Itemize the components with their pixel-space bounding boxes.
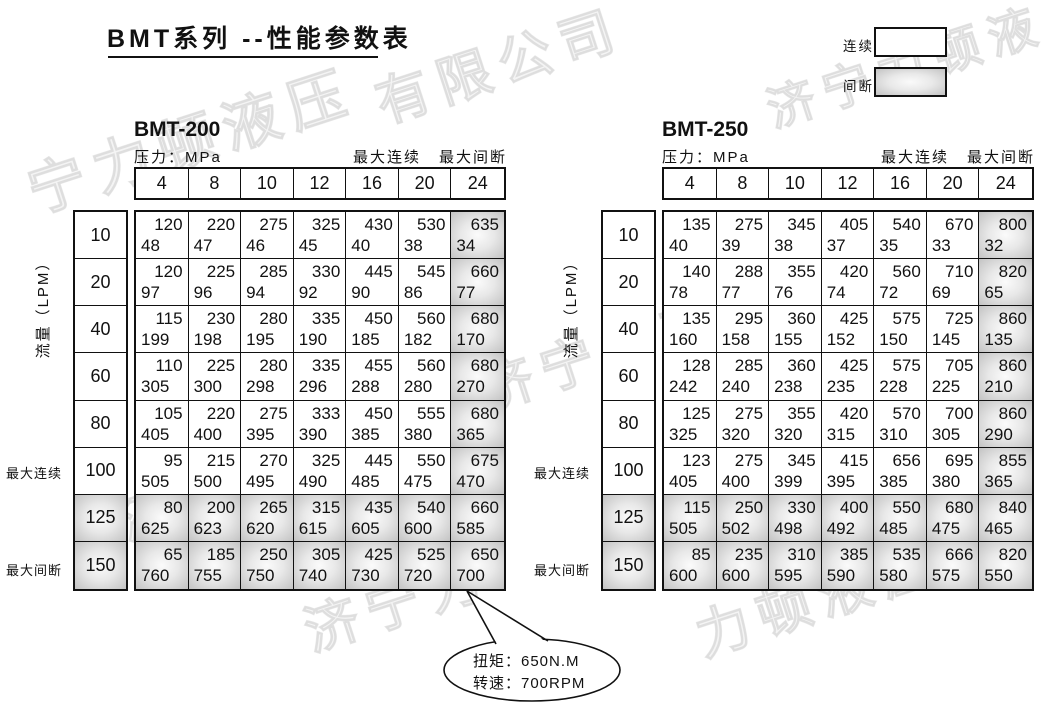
cell-torque-value: 360: [769, 308, 821, 329]
cell-speed-value: 740: [294, 565, 346, 586]
cell-speed-value: 465: [979, 518, 1032, 539]
cell-torque-value: 125: [664, 403, 716, 424]
cell-speed-value: 240: [717, 376, 769, 397]
cell-torque-value: 450: [346, 308, 398, 329]
data-cell: 335296: [294, 353, 347, 400]
cell-speed-value: 72: [874, 282, 926, 303]
flow-cell: 150: [603, 542, 654, 589]
cell-torque-value: 120: [136, 261, 188, 282]
data-cell: 695380: [927, 448, 980, 495]
data-cell: 420315: [822, 401, 875, 448]
cell-torque-value: 135: [664, 214, 716, 235]
data-cell: 40537: [822, 212, 875, 259]
cell-torque-value: 445: [346, 450, 398, 471]
cell-speed-value: 310: [874, 424, 926, 445]
cell-speed-value: 399: [769, 471, 821, 492]
cell-speed-value: 46: [241, 235, 293, 256]
pressure-header-cell: 20: [399, 169, 452, 198]
cell-torque-value: 660: [451, 497, 504, 518]
data-cell: 560182: [399, 306, 452, 353]
cell-torque-value: 545: [399, 261, 451, 282]
cell-torque-value: 275: [717, 214, 769, 235]
data-cell: 860290: [979, 401, 1032, 448]
data-cell: 27546: [241, 212, 294, 259]
cell-speed-value: 77: [717, 282, 769, 303]
flow-cell: 40: [75, 306, 126, 353]
cell-speed-value: 730: [346, 565, 398, 586]
data-cell: 333390: [294, 401, 347, 448]
data-cell: 42074: [822, 259, 875, 306]
cell-speed-value: 485: [874, 518, 926, 539]
header-max-labels: 最大连续 最大间断: [290, 146, 507, 167]
cell-torque-value: 710: [927, 261, 979, 282]
data-cell: 855365: [979, 448, 1032, 495]
cell-torque-value: 185: [189, 544, 241, 565]
cell-torque-value: 325: [294, 214, 346, 235]
cell-torque-value: 85: [664, 544, 716, 565]
cell-torque-value: 275: [717, 403, 769, 424]
cell-speed-value: 160: [664, 329, 716, 350]
data-cell: 270495: [241, 448, 294, 495]
flow-cell: 125: [75, 495, 126, 542]
data-cell: 14078: [664, 259, 717, 306]
cell-speed-value: 225: [927, 376, 979, 397]
data-cell: 450185: [346, 306, 399, 353]
pressure-header-cell: 10: [769, 169, 822, 198]
cell-speed-value: 155: [769, 329, 821, 350]
data-cell: 455288: [346, 353, 399, 400]
cell-torque-value: 315: [294, 497, 346, 518]
data-cell: 295158: [717, 306, 770, 353]
cell-torque-value: 860: [979, 355, 1032, 376]
data-cell: 560280: [399, 353, 452, 400]
cell-torque-value: 345: [769, 214, 821, 235]
cell-torque-value: 680: [451, 308, 504, 329]
cell-speed-value: 380: [927, 471, 979, 492]
cell-speed-value: 33: [927, 235, 979, 256]
cell-speed-value: 35: [874, 235, 926, 256]
data-cell: 305740: [294, 542, 347, 589]
cell-torque-value: 860: [979, 308, 1032, 329]
cell-torque-value: 660: [451, 261, 504, 282]
cell-torque-value: 650: [451, 544, 504, 565]
data-cell: 285240: [717, 353, 770, 400]
cell-speed-value: 77: [451, 282, 504, 303]
flow-cell: 100: [603, 448, 654, 495]
data-cell: 53038: [399, 212, 452, 259]
cell-speed-value: 502: [717, 518, 769, 539]
cell-speed-value: 620: [241, 518, 293, 539]
cell-speed-value: 365: [451, 424, 504, 445]
cell-speed-value: 290: [979, 424, 1032, 445]
data-cell: 230198: [189, 306, 242, 353]
cell-speed-value: 182: [399, 329, 451, 350]
cell-speed-value: 190: [294, 329, 346, 350]
data-cell: 550475: [399, 448, 452, 495]
data-cell: 43040: [346, 212, 399, 259]
cell-torque-value: 540: [874, 214, 926, 235]
data-cell: 95505: [136, 448, 189, 495]
cell-speed-value: 90: [346, 282, 398, 303]
cell-torque-value: 725: [927, 308, 979, 329]
data-cell: 280195: [241, 306, 294, 353]
cell-torque-value: 675: [451, 450, 504, 471]
cell-torque-value: 420: [822, 403, 874, 424]
cell-speed-value: 580: [874, 565, 926, 586]
cell-torque-value: 445: [346, 261, 398, 282]
data-cell: 275395: [241, 401, 294, 448]
cell-speed-value: 475: [927, 518, 979, 539]
pressure-header-cell: 24: [451, 169, 504, 198]
cell-torque-value: 80: [136, 497, 188, 518]
data-cell: 860210: [979, 353, 1032, 400]
cell-torque-value: 525: [399, 544, 451, 565]
cell-torque-value: 275: [241, 403, 293, 424]
cell-speed-value: 199: [136, 329, 188, 350]
cell-speed-value: 198: [189, 329, 241, 350]
cell-speed-value: 550: [979, 565, 1032, 586]
cell-speed-value: 400: [717, 471, 769, 492]
cell-speed-value: 390: [294, 424, 346, 445]
cell-speed-value: 86: [399, 282, 451, 303]
cell-torque-value: 635: [451, 214, 504, 235]
cell-speed-value: 40: [664, 235, 716, 256]
data-cell: 525720: [399, 542, 452, 589]
cell-torque-value: 680: [927, 497, 979, 518]
data-cell: 12048: [136, 212, 189, 259]
data-cell: 555380: [399, 401, 452, 448]
cell-torque-value: 656: [874, 450, 926, 471]
cell-torque-value: 400: [822, 497, 874, 518]
cell-speed-value: 320: [717, 424, 769, 445]
data-cell: 67033: [927, 212, 980, 259]
data-cell: 63534: [451, 212, 504, 259]
data-cell: 345399: [769, 448, 822, 495]
cell-torque-value: 200: [189, 497, 241, 518]
data-cell: 275320: [717, 401, 770, 448]
data-cell: 330498: [769, 495, 822, 542]
data-cell: 335190: [294, 306, 347, 353]
cell-speed-value: 170: [451, 329, 504, 350]
cell-speed-value: 150: [874, 329, 926, 350]
cell-torque-value: 115: [136, 308, 188, 329]
data-cell: 54035: [874, 212, 927, 259]
cell-speed-value: 700: [451, 565, 504, 586]
flow-cell: 20: [603, 259, 654, 306]
data-cell: 656385: [874, 448, 927, 495]
cell-torque-value: 95: [136, 450, 188, 471]
cell-speed-value: 32: [979, 235, 1032, 256]
data-cell: 215500: [189, 448, 242, 495]
max-continuous-row-label: 最大连续: [6, 463, 62, 482]
data-cell: 65760: [136, 542, 189, 589]
cell-torque-value: 140: [664, 261, 716, 282]
cell-speed-value: 365: [979, 471, 1032, 492]
cell-torque-value: 333: [294, 403, 346, 424]
data-cell: 700305: [927, 401, 980, 448]
cell-speed-value: 195: [241, 329, 293, 350]
cell-speed-value: 750: [241, 565, 293, 586]
cell-speed-value: 34: [451, 235, 504, 256]
cell-speed-value: 74: [822, 282, 874, 303]
data-cell: 550485: [874, 495, 927, 542]
cell-torque-value: 680: [451, 403, 504, 424]
data-cell: 660585: [451, 495, 504, 542]
cell-torque-value: 355: [769, 403, 821, 424]
data-cell: 705225: [927, 353, 980, 400]
data-cell: 435605: [346, 495, 399, 542]
data-cell: 415395: [822, 448, 875, 495]
cell-speed-value: 485: [346, 471, 398, 492]
data-cell: 85600: [664, 542, 717, 589]
cell-speed-value: 490: [294, 471, 346, 492]
data-cell: 250502: [717, 495, 770, 542]
cell-speed-value: 380: [399, 424, 451, 445]
cell-torque-value: 275: [717, 450, 769, 471]
cell-torque-value: 280: [241, 355, 293, 376]
data-cell: 575150: [874, 306, 927, 353]
cell-speed-value: 48: [136, 235, 188, 256]
cell-speed-value: 94: [241, 282, 293, 303]
cell-speed-value: 76: [769, 282, 821, 303]
cell-speed-value: 600: [399, 518, 451, 539]
data-cell: 425152: [822, 306, 875, 353]
cell-speed-value: 296: [294, 376, 346, 397]
cell-torque-value: 405: [822, 214, 874, 235]
cell-torque-value: 700: [927, 403, 979, 424]
cell-speed-value: 605: [346, 518, 398, 539]
cell-speed-value: 405: [664, 471, 716, 492]
data-cell: 355320: [769, 401, 822, 448]
cell-speed-value: 39: [717, 235, 769, 256]
cell-torque-value: 560: [399, 308, 451, 329]
cell-torque-value: 680: [451, 355, 504, 376]
cell-speed-value: 96: [189, 282, 241, 303]
cell-torque-value: 530: [399, 214, 451, 235]
flow-column: 1020406080100125150: [601, 210, 656, 591]
pressure-unit-label: 压力：MPa: [662, 146, 750, 167]
pressure-header-cell: 12: [822, 169, 875, 198]
data-cell: 360155: [769, 306, 822, 353]
cell-speed-value: 400: [189, 424, 241, 445]
data-cell: 680475: [927, 495, 980, 542]
cell-torque-value: 335: [294, 355, 346, 376]
cell-speed-value: 38: [399, 235, 451, 256]
cell-torque-value: 560: [399, 355, 451, 376]
pressure-header-cell: 8: [717, 169, 770, 198]
data-cell: 33092: [294, 259, 347, 306]
cell-torque-value: 110: [136, 355, 188, 376]
cell-torque-value: 330: [769, 497, 821, 518]
cell-speed-value: 760: [136, 565, 188, 586]
cell-speed-value: 385: [874, 471, 926, 492]
cell-torque-value: 385: [822, 544, 874, 565]
cell-torque-value: 265: [241, 497, 293, 518]
cell-speed-value: 135: [979, 329, 1032, 350]
cell-torque-value: 430: [346, 214, 398, 235]
flow-cell: 10: [75, 212, 126, 259]
max-intermittent-label: 最大间断: [967, 146, 1035, 167]
cell-speed-value: 623: [189, 518, 241, 539]
cell-torque-value: 425: [822, 308, 874, 329]
data-cell: 400492: [822, 495, 875, 542]
data-cell: 425730: [346, 542, 399, 589]
cell-torque-value: 220: [189, 214, 241, 235]
cell-speed-value: 315: [822, 424, 874, 445]
cell-speed-value: 595: [769, 565, 821, 586]
callout-speed: 转速：700RPM: [473, 673, 585, 695]
cell-torque-value: 355: [769, 261, 821, 282]
pressure-header-row: 481012162024: [134, 167, 506, 200]
data-cell: 185755: [189, 542, 242, 589]
cell-torque-value: 855: [979, 450, 1032, 471]
flow-cell: 10: [603, 212, 654, 259]
max-continuous-label: 最大连续: [881, 146, 949, 167]
cell-torque-value: 455: [346, 355, 398, 376]
data-cell: 200623: [189, 495, 242, 542]
data-cell: 115199: [136, 306, 189, 353]
data-cell: 666575: [927, 542, 980, 589]
data-cell: 34538: [769, 212, 822, 259]
cell-speed-value: 78: [664, 282, 716, 303]
data-cell: 27539: [717, 212, 770, 259]
cell-torque-value: 450: [346, 403, 398, 424]
cell-torque-value: 135: [664, 308, 716, 329]
data-cell: 125325: [664, 401, 717, 448]
data-cell: 680365: [451, 401, 504, 448]
cell-torque-value: 570: [874, 403, 926, 424]
flow-cell: 80: [75, 401, 126, 448]
cell-torque-value: 305: [294, 544, 346, 565]
data-cell: 265620: [241, 495, 294, 542]
cell-speed-value: 65: [979, 282, 1032, 303]
cell-speed-value: 185: [346, 329, 398, 350]
cell-torque-value: 540: [399, 497, 451, 518]
data-grid: 1204822047275463254543040530386353412097…: [134, 210, 506, 591]
cell-speed-value: 210: [979, 376, 1032, 397]
cell-torque-value: 666: [927, 544, 979, 565]
cell-speed-value: 720: [399, 565, 451, 586]
data-cell: 535580: [874, 542, 927, 589]
cell-speed-value: 235: [822, 376, 874, 397]
cell-speed-value: 298: [241, 376, 293, 397]
data-cell: 325490: [294, 448, 347, 495]
data-cell: 385590: [822, 542, 875, 589]
cell-torque-value: 335: [294, 308, 346, 329]
cell-torque-value: 695: [927, 450, 979, 471]
data-cell: 675470: [451, 448, 504, 495]
pressure-header-cell: 16: [874, 169, 927, 198]
data-cell: 310595: [769, 542, 822, 589]
cell-torque-value: 550: [874, 497, 926, 518]
cell-speed-value: 288: [346, 376, 398, 397]
flow-cell: 40: [603, 306, 654, 353]
cell-speed-value: 470: [451, 471, 504, 492]
pressure-header-row: 481012162024: [662, 167, 1034, 200]
cell-torque-value: 535: [874, 544, 926, 565]
cell-torque-value: 555: [399, 403, 451, 424]
data-cell: 450385: [346, 401, 399, 448]
callout-text: 扭矩：650N.M 转速：700RPM: [473, 651, 585, 695]
cell-speed-value: 69: [927, 282, 979, 303]
cell-speed-value: 755: [189, 565, 241, 586]
cell-speed-value: 305: [927, 424, 979, 445]
table-name: BMT-250: [662, 118, 748, 142]
cell-torque-value: 310: [769, 544, 821, 565]
cell-speed-value: 37: [822, 235, 874, 256]
max-intermittent-label: 最大间断: [439, 146, 507, 167]
data-cell: 725145: [927, 306, 980, 353]
data-cell: 315615: [294, 495, 347, 542]
cell-speed-value: 625: [136, 518, 188, 539]
flow-cell: 125: [603, 495, 654, 542]
cell-speed-value: 500: [189, 471, 241, 492]
flow-cell: 60: [75, 353, 126, 400]
document-page: 宁力顿液压有限公司济宁力顿液济宁力顿液压液压有限公司济宁力力顿液压 BMT系列 …: [0, 0, 1047, 718]
data-cell: 128242: [664, 353, 717, 400]
data-cell: 650700: [451, 542, 504, 589]
data-cell: 840465: [979, 495, 1032, 542]
cell-speed-value: 152: [822, 329, 874, 350]
data-cell: 22596: [189, 259, 242, 306]
max-intermittent-row-label: 最大间断: [534, 560, 590, 579]
data-cell: 71069: [927, 259, 980, 306]
cell-torque-value: 820: [979, 261, 1032, 282]
cell-speed-value: 97: [136, 282, 188, 303]
pressure-header-cell: 4: [136, 169, 189, 198]
cell-torque-value: 435: [346, 497, 398, 518]
cell-speed-value: 47: [189, 235, 241, 256]
flow-cell: 150: [75, 542, 126, 589]
pressure-header-cell: 8: [189, 169, 242, 198]
data-cell: 105405: [136, 401, 189, 448]
data-cell: 275400: [717, 448, 770, 495]
data-cell: 80625: [136, 495, 189, 542]
cell-torque-value: 415: [822, 450, 874, 471]
pressure-unit-label: 压力：MPa: [134, 146, 222, 167]
data-cell: 570310: [874, 401, 927, 448]
cell-speed-value: 495: [241, 471, 293, 492]
max-continuous-row-label: 最大连续: [534, 463, 590, 482]
data-cell: 110305: [136, 353, 189, 400]
cell-speed-value: 600: [664, 565, 716, 586]
cell-speed-value: 395: [241, 424, 293, 445]
cell-speed-value: 395: [822, 471, 874, 492]
cell-torque-value: 840: [979, 497, 1032, 518]
cell-torque-value: 575: [874, 355, 926, 376]
table-name: BMT-200: [134, 118, 220, 142]
flow-axis-label: 流量（LPM）: [32, 221, 52, 391]
cell-torque-value: 560: [874, 261, 926, 282]
max-continuous-label: 最大连续: [353, 146, 421, 167]
data-cell: 540600: [399, 495, 452, 542]
cell-speed-value: 45: [294, 235, 346, 256]
cell-speed-value: 585: [451, 518, 504, 539]
cell-torque-value: 330: [294, 261, 346, 282]
cell-torque-value: 128: [664, 355, 716, 376]
cell-speed-value: 575: [927, 565, 979, 586]
pressure-header-cell: 20: [927, 169, 980, 198]
cell-torque-value: 235: [717, 544, 769, 565]
cell-torque-value: 115: [664, 497, 716, 518]
cell-speed-value: 505: [664, 518, 716, 539]
max-intermittent-row-label: 最大间断: [6, 560, 62, 579]
cell-speed-value: 280: [399, 376, 451, 397]
cell-speed-value: 320: [769, 424, 821, 445]
cell-torque-value: 285: [717, 355, 769, 376]
cell-torque-value: 270: [241, 450, 293, 471]
bmt-200-block: BMT-200 压力：MPa 最大连续 最大间断 流量（LPM） 最大连续 最大…: [0, 0, 520, 718]
